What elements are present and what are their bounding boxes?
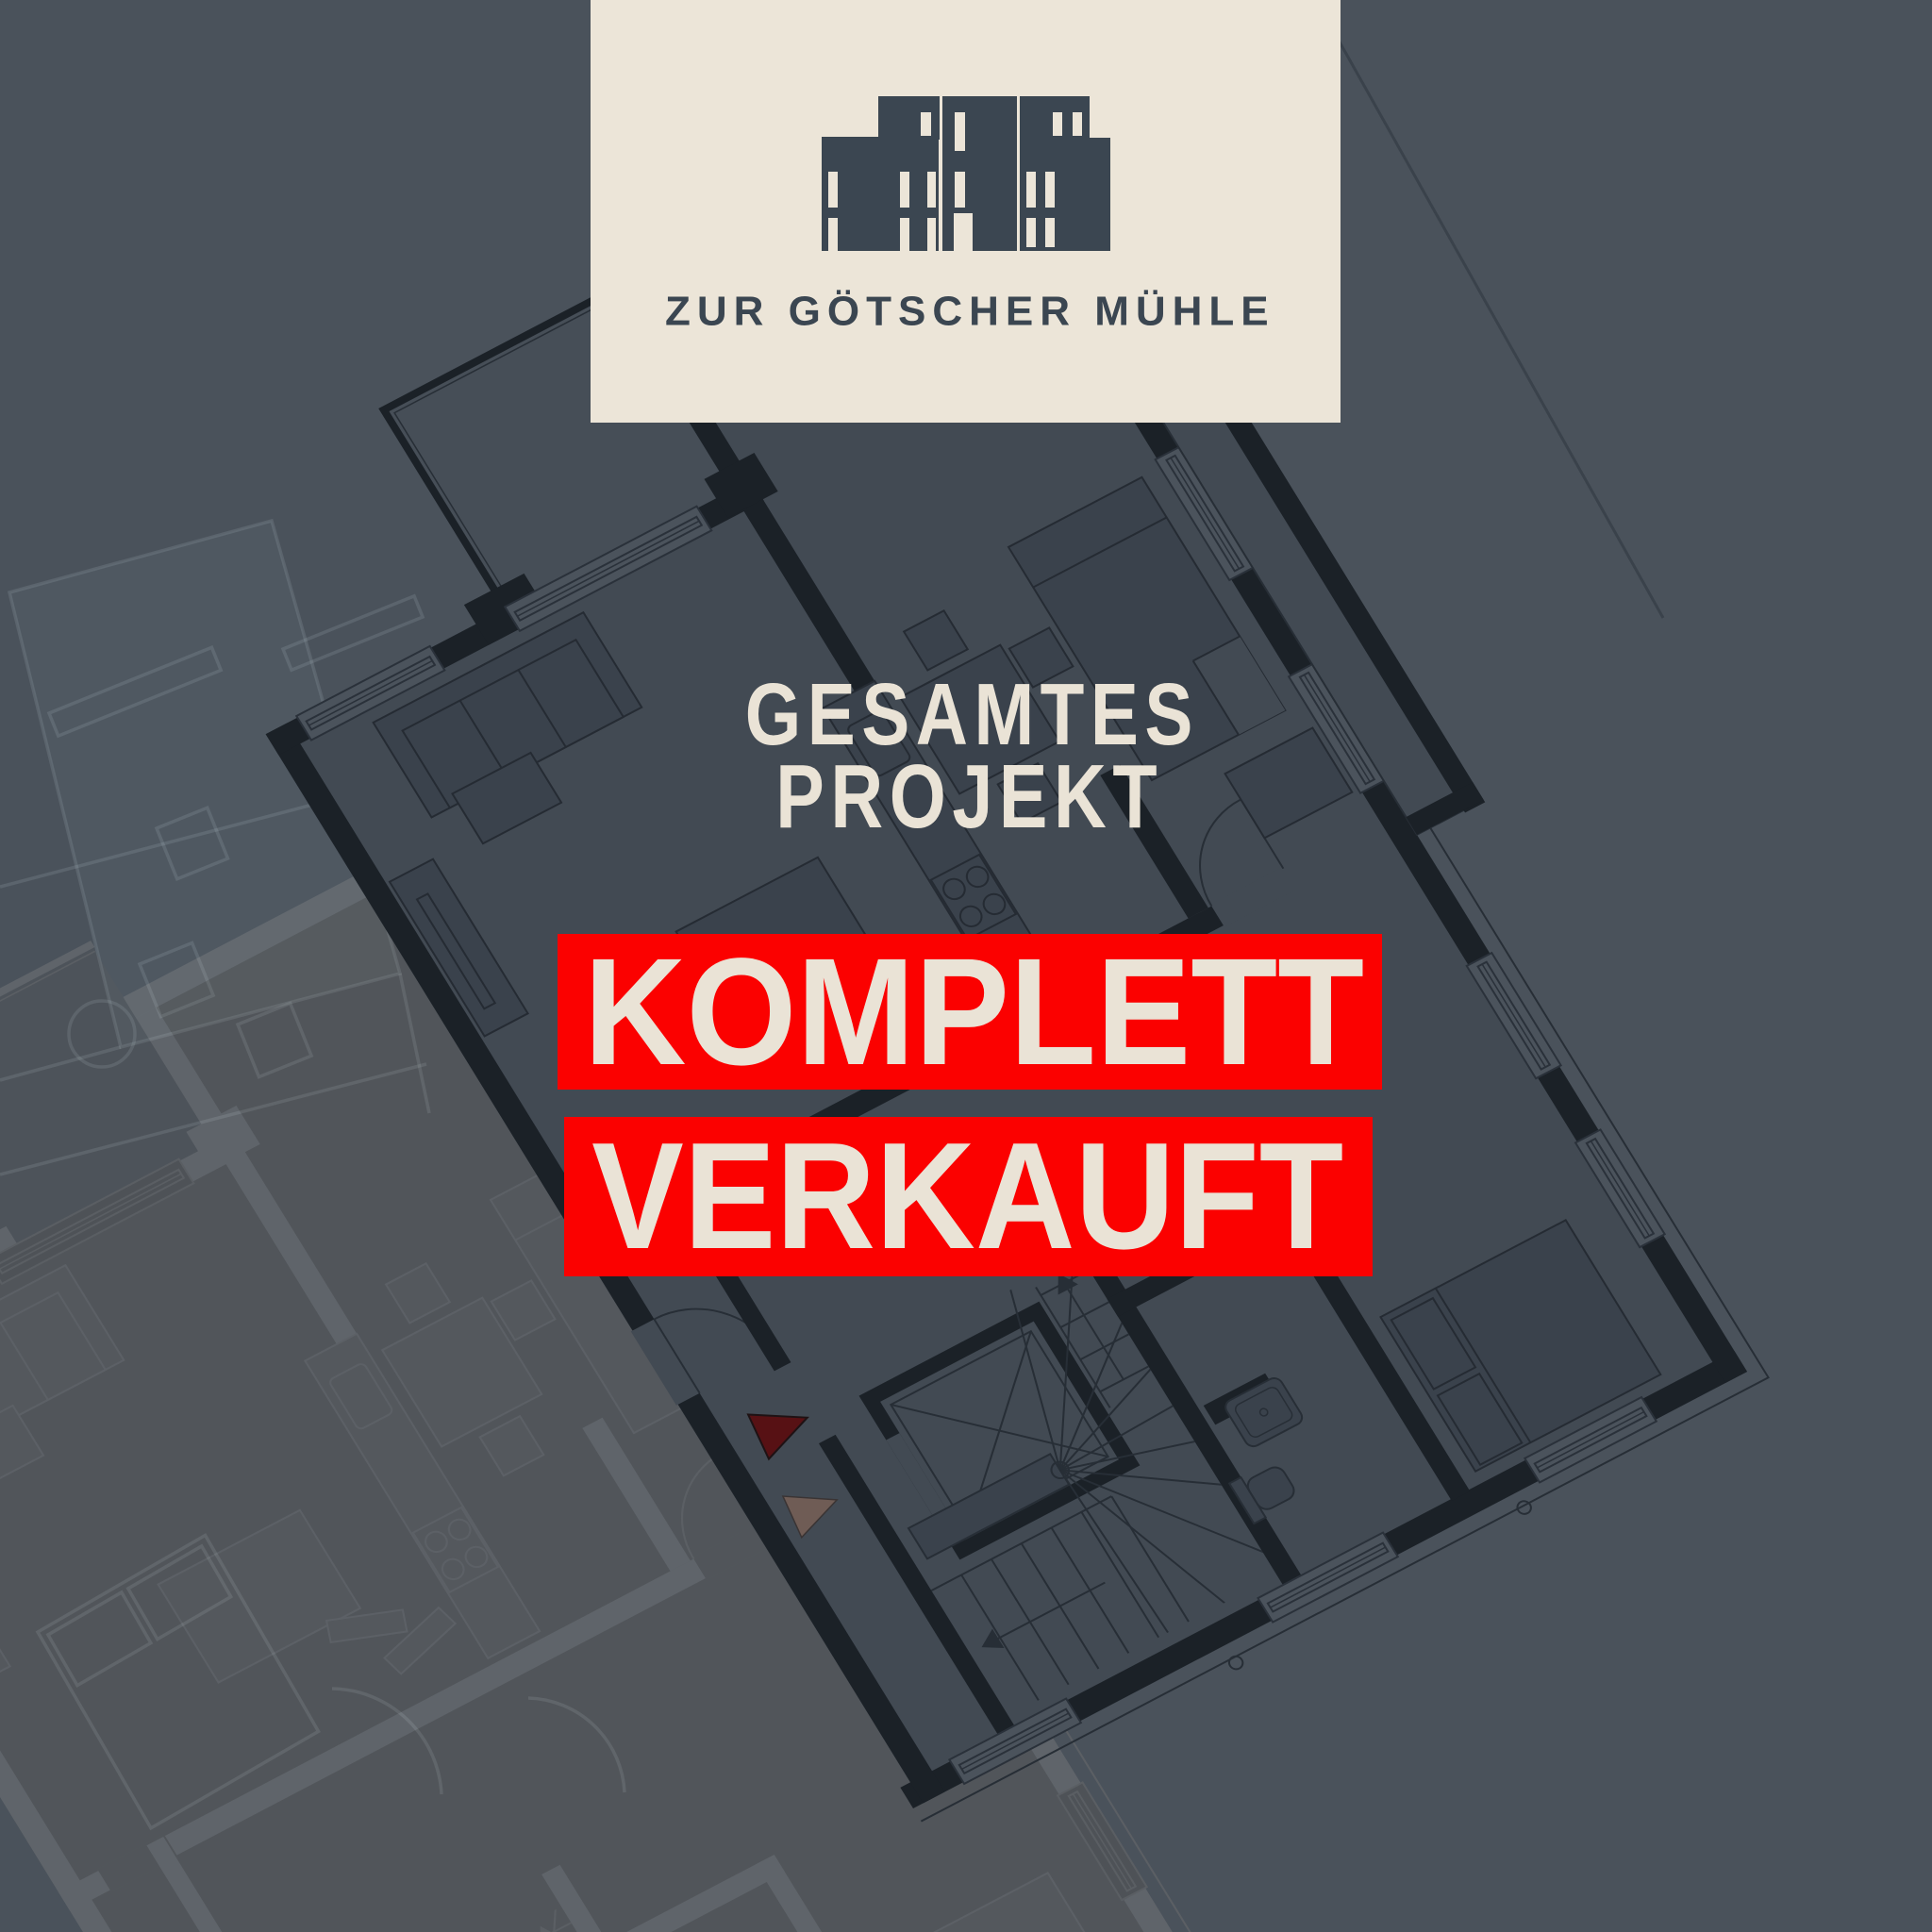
svg-text:PROJEKT: PROJEKT bbox=[775, 746, 1163, 847]
svg-text:VERKAUFT: VERKAUFT bbox=[591, 1111, 1343, 1281]
svg-text:KOMPLETT: KOMPLETT bbox=[584, 927, 1364, 1097]
svg-text:ZUR GÖTSCHER MÜHLE: ZUR GÖTSCHER MÜHLE bbox=[665, 289, 1275, 335]
